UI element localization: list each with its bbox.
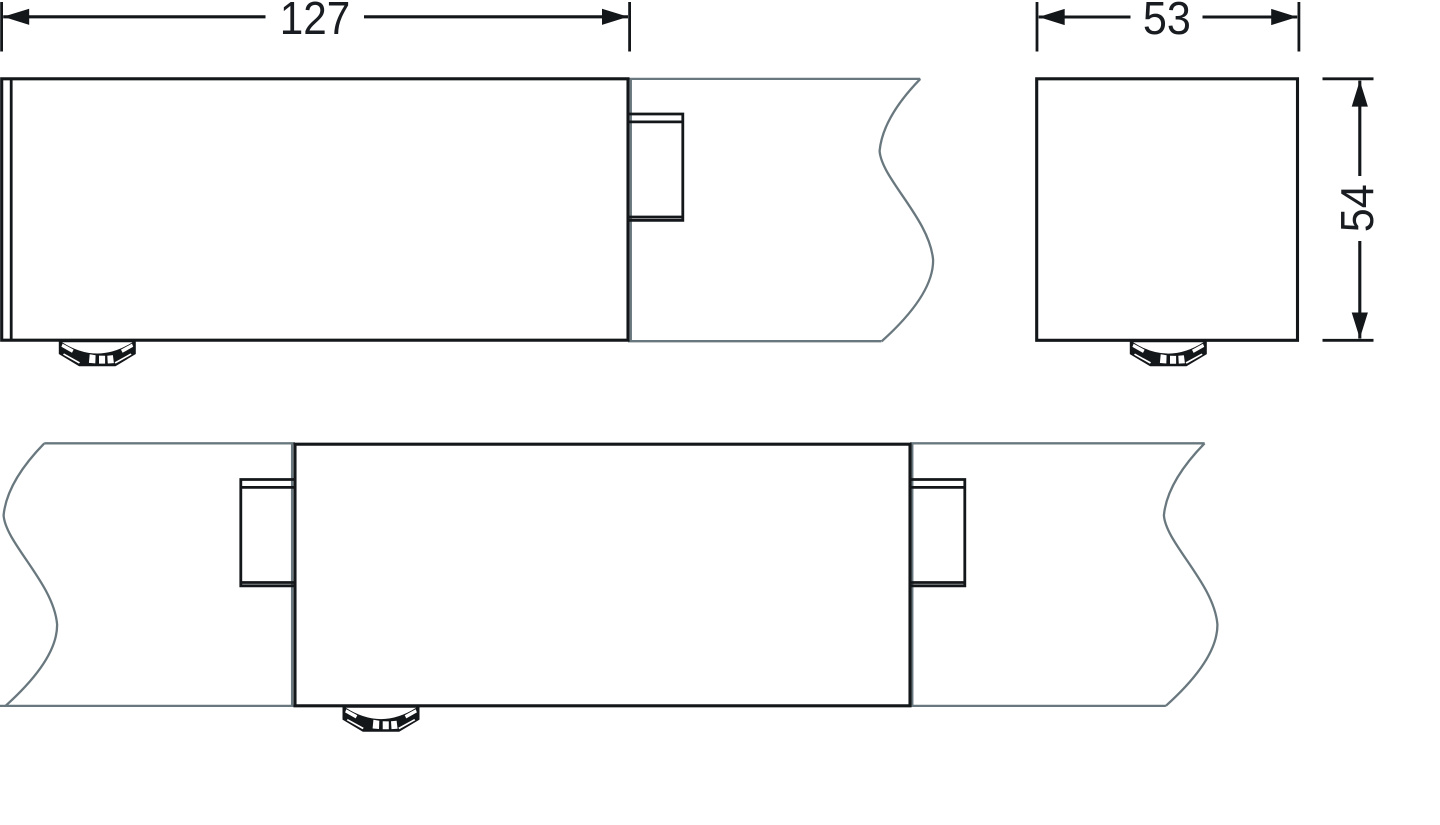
svg-text:53: 53	[1143, 0, 1191, 44]
svg-text:127: 127	[280, 0, 351, 44]
svg-text:54: 54	[1331, 184, 1383, 232]
